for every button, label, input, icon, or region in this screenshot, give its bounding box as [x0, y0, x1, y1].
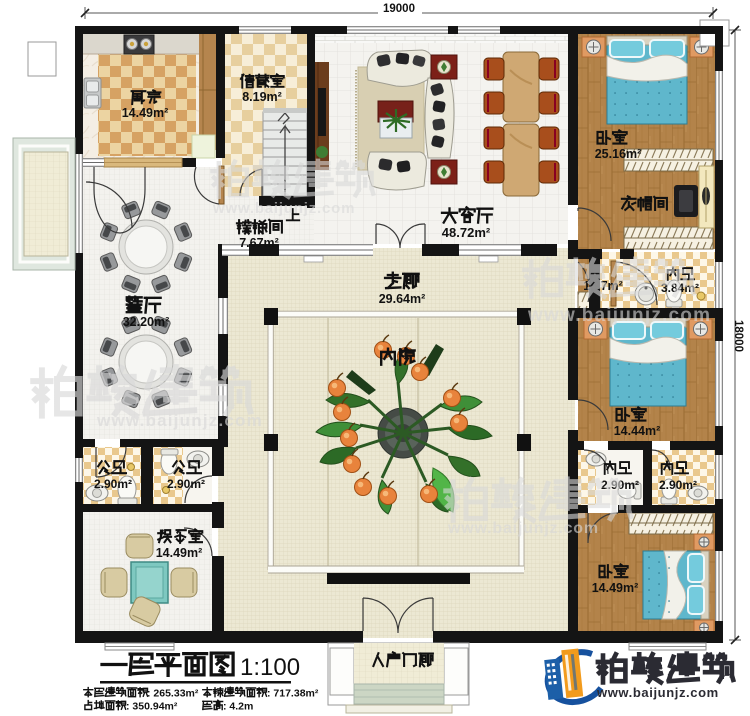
svg-text:14.44m²: 14.44m² [614, 424, 661, 438]
svg-text:19000: 19000 [383, 3, 415, 15]
svg-text:18000: 18000 [732, 320, 744, 352]
svg-text:29.64m²: 29.64m² [379, 292, 426, 306]
svg-text:1:100: 1:100 [240, 654, 300, 681]
svg-text:8.19m²: 8.19m² [242, 90, 282, 104]
svg-text:7.67m²: 7.67m² [239, 236, 279, 250]
svg-text:14.49m²: 14.49m² [156, 546, 203, 560]
svg-text:14.49m²: 14.49m² [122, 106, 169, 120]
svg-text:2.90m²: 2.90m² [659, 478, 697, 492]
svg-text:www.baijunjz.com: www.baijunjz.com [596, 685, 719, 700]
svg-text:: 265.33m²: : 265.33m² [147, 688, 199, 700]
svg-text:48.72m²: 48.72m² [442, 225, 491, 240]
svg-text:14.49m²: 14.49m² [592, 581, 639, 595]
svg-text:: 350.94m²: : 350.94m² [126, 701, 178, 713]
svg-text:: 4.2m: : 4.2m [223, 701, 253, 713]
svg-text:2.90m²: 2.90m² [94, 477, 132, 491]
svg-text:www.baijunjz.com: www.baijunjz.com [96, 411, 263, 430]
svg-text:www.baijunjz.com: www.baijunjz.com [212, 200, 355, 217]
svg-text:32.20m²: 32.20m² [123, 315, 170, 329]
svg-text:: 717.38m²: : 717.38m² [267, 688, 319, 700]
svg-text:2.90m²: 2.90m² [167, 477, 205, 491]
svg-text:www.baijunjz.com: www.baijunjz.com [527, 305, 711, 326]
svg-text:www.baijunjz.com: www.baijunjz.com [447, 520, 599, 537]
svg-text:25.16m²: 25.16m² [595, 147, 642, 161]
